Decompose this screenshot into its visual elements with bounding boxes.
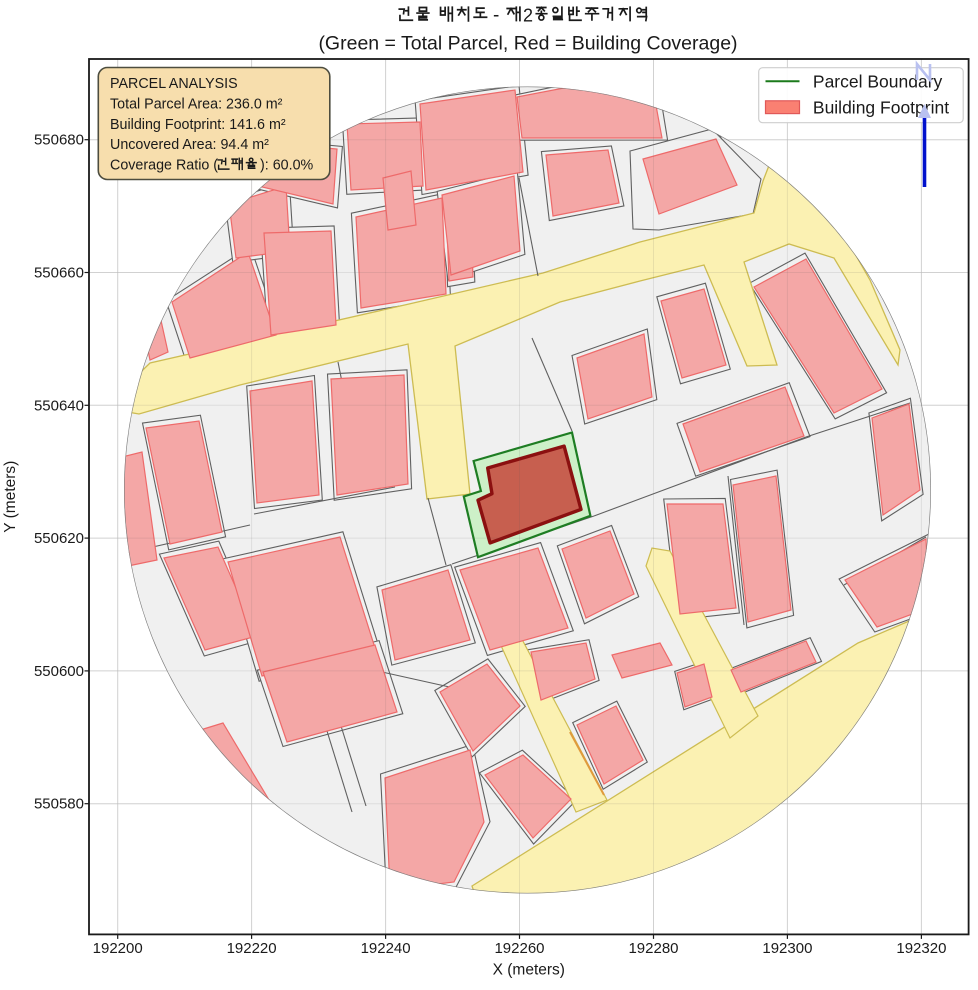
svg-text:(Green = Total Parcel, Red = B: (Green = Total Parcel, Red = Building Co… — [318, 33, 737, 55]
svg-text:550600: 550600 — [34, 663, 84, 680]
svg-text:Building Footprint: 141.6 m²: Building Footprint: 141.6 m² — [110, 117, 286, 133]
svg-text:PARCEL ANALYSIS: PARCEL ANALYSIS — [110, 76, 238, 92]
svg-text:Uncovered Area: 94.4 m²: Uncovered Area: 94.4 m² — [110, 137, 269, 153]
svg-text:550680: 550680 — [34, 132, 84, 149]
svg-text:Total Parcel Area: 236.0 m²: Total Parcel Area: 236.0 m² — [110, 97, 283, 113]
svg-text:): 60.0%: ): 60.0% — [260, 157, 314, 173]
svg-text:Coverage Ratio (: Coverage Ratio ( — [110, 157, 218, 173]
svg-text:Y (meters): Y (meters) — [2, 461, 19, 533]
svg-text:-: - — [493, 5, 499, 26]
svg-text:192280: 192280 — [628, 940, 678, 957]
svg-text:Parcel Boundary: Parcel Boundary — [813, 72, 943, 92]
svg-text:192240: 192240 — [361, 940, 411, 957]
svg-text:192300: 192300 — [762, 940, 812, 957]
svg-text:2: 2 — [523, 6, 533, 26]
svg-text:550640: 550640 — [34, 397, 84, 414]
svg-text:550660: 550660 — [34, 265, 84, 282]
svg-text:192220: 192220 — [227, 940, 277, 957]
svg-text:192320: 192320 — [896, 940, 946, 957]
svg-text:X (meters): X (meters) — [493, 962, 565, 979]
svg-text:192260: 192260 — [494, 940, 544, 957]
svg-text:550580: 550580 — [34, 796, 84, 813]
svg-text:192200: 192200 — [93, 940, 143, 957]
svg-text:550620: 550620 — [34, 530, 84, 547]
